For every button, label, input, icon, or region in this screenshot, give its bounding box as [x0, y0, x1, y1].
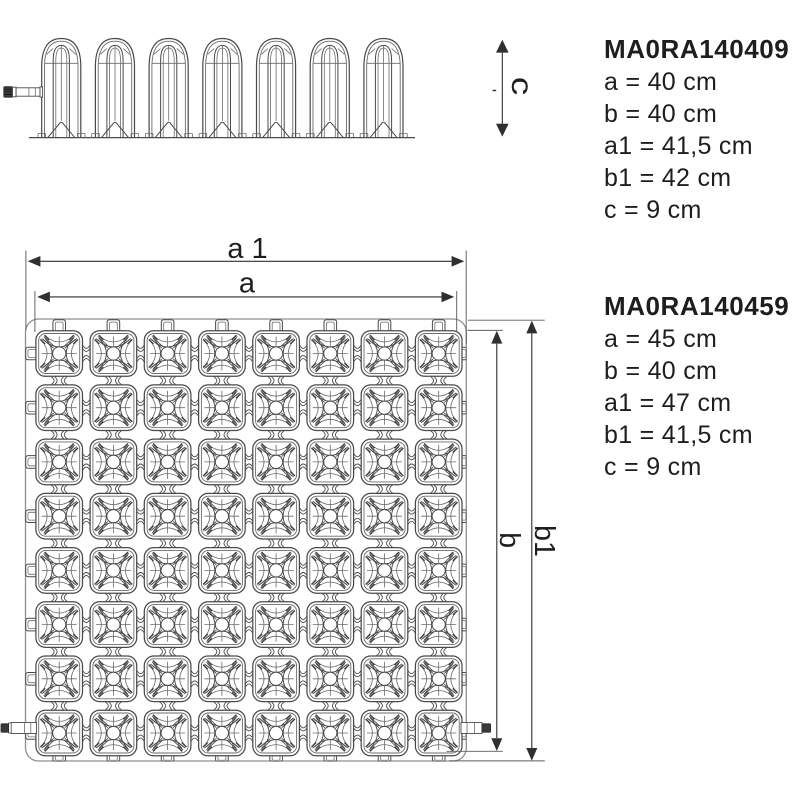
- svg-text:c: c: [505, 77, 538, 95]
- svg-text:a 1: a 1: [227, 233, 267, 265]
- svg-text:a: a: [239, 268, 256, 300]
- svg-text:b: b: [493, 532, 525, 548]
- svg-text:b1: b1: [528, 525, 560, 557]
